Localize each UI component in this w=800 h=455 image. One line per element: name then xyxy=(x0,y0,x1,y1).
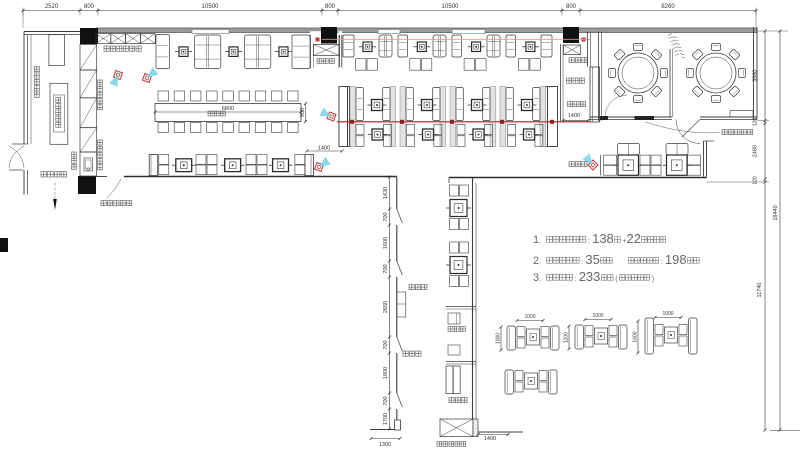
svg-text:800: 800 xyxy=(325,4,336,10)
svg-text:1000: 1000 xyxy=(524,314,535,320)
svg-text:3980: 3980 xyxy=(753,70,759,82)
svg-text:1600: 1600 xyxy=(383,237,389,249)
svg-text:138: 138 xyxy=(592,231,614,246)
svg-text:1000: 1000 xyxy=(496,333,502,344)
svg-text:1400: 1400 xyxy=(484,436,496,442)
svg-text:10500: 10500 xyxy=(442,4,459,10)
svg-text:2: 2 xyxy=(533,255,539,267)
svg-text:1100: 1100 xyxy=(564,332,570,343)
svg-text:700: 700 xyxy=(383,396,389,405)
svg-text:800: 800 xyxy=(566,4,577,10)
svg-text::: : xyxy=(575,276,577,283)
svg-text:1400: 1400 xyxy=(318,146,330,152)
svg-text:800: 800 xyxy=(84,4,95,10)
svg-text::: : xyxy=(661,259,663,266)
svg-text:233: 233 xyxy=(579,269,601,284)
svg-text:120: 120 xyxy=(753,118,759,127)
svg-text:900: 900 xyxy=(300,108,306,117)
svg-text:2650: 2650 xyxy=(383,301,389,313)
svg-text:1000: 1000 xyxy=(662,311,673,317)
svg-text:3: 3 xyxy=(533,272,539,284)
svg-text:35: 35 xyxy=(585,252,599,267)
svg-text:18440: 18440 xyxy=(773,205,779,220)
svg-text::: : xyxy=(588,238,590,245)
svg-text:700: 700 xyxy=(383,212,389,221)
svg-text:22: 22 xyxy=(627,231,641,246)
svg-text:2520: 2520 xyxy=(45,4,59,10)
svg-text::: : xyxy=(581,259,583,266)
svg-text:1400: 1400 xyxy=(568,113,580,119)
svg-text:10500: 10500 xyxy=(202,4,219,10)
svg-text:11740: 11740 xyxy=(757,283,763,298)
svg-text:1000: 1000 xyxy=(592,313,603,319)
svg-text:1800: 1800 xyxy=(383,367,389,379)
svg-text:1300: 1300 xyxy=(379,442,391,448)
svg-text:1: 1 xyxy=(533,234,539,246)
svg-text:8260: 8260 xyxy=(661,4,675,10)
svg-text:): ) xyxy=(652,276,654,283)
svg-text:120: 120 xyxy=(753,176,759,185)
svg-text:1430: 1430 xyxy=(383,187,389,199)
svg-text:700: 700 xyxy=(383,340,389,349)
svg-text:1700: 1700 xyxy=(383,413,389,425)
svg-text:700: 700 xyxy=(383,264,389,273)
svg-text:1600: 1600 xyxy=(633,331,639,342)
svg-text:2480: 2480 xyxy=(753,145,759,157)
svg-text:198: 198 xyxy=(665,252,687,267)
